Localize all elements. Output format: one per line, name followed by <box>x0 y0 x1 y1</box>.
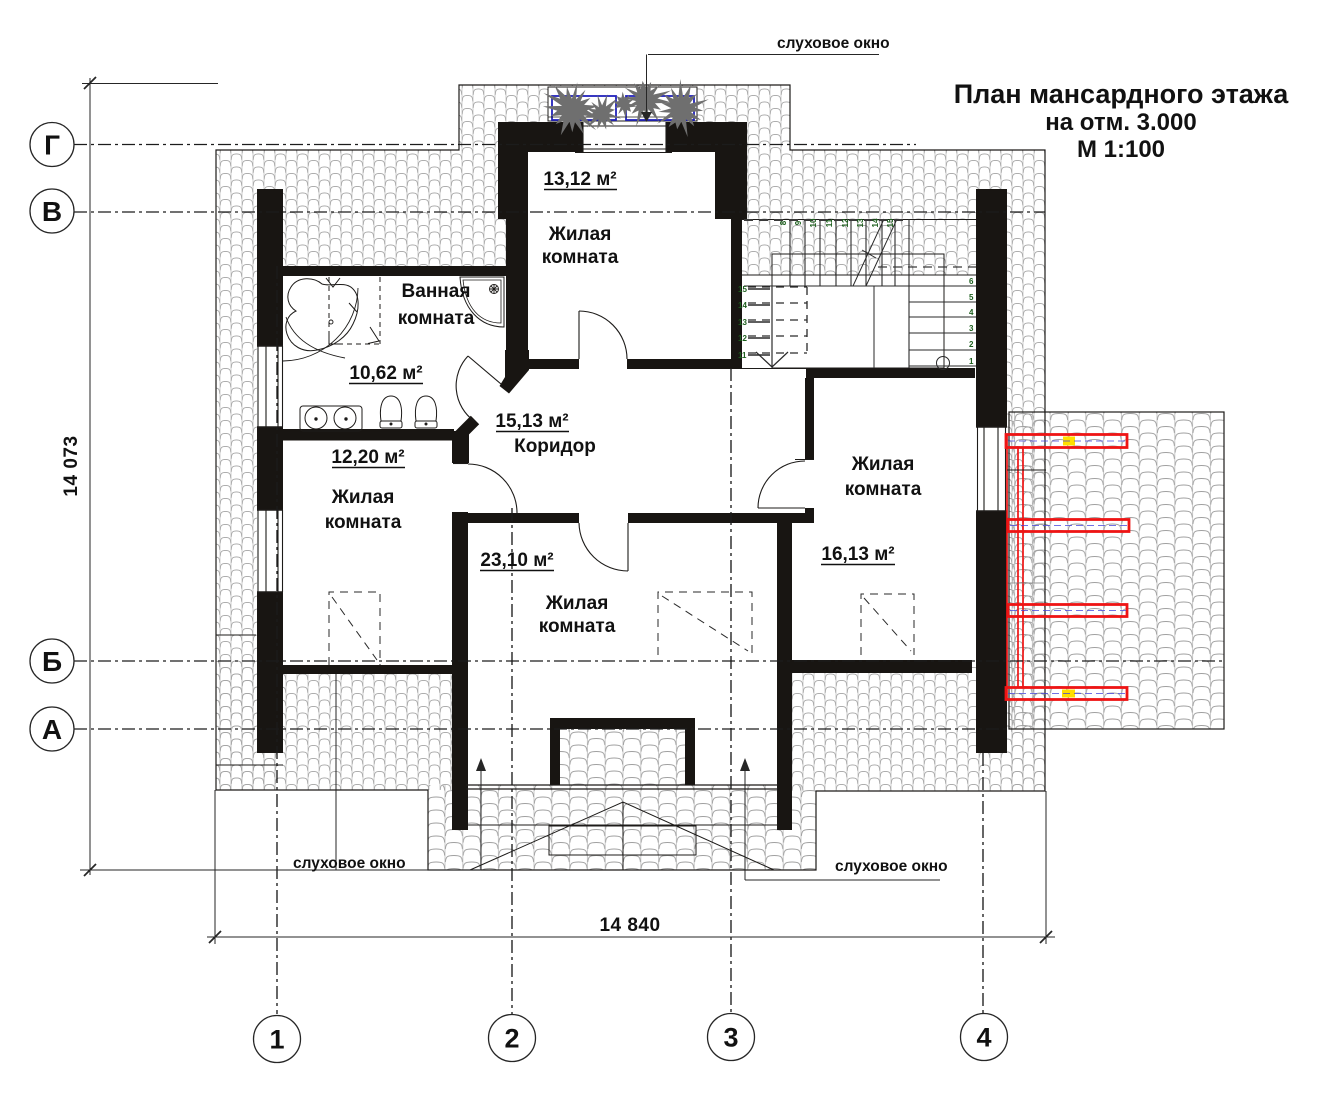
svg-text:Ванная: Ванная <box>402 281 471 302</box>
svg-text:слуховое окно: слуховое окно <box>293 855 406 872</box>
svg-text:5: 5 <box>969 293 974 302</box>
svg-text:12: 12 <box>841 218 850 227</box>
svg-text:Коридор: Коридор <box>514 436 596 457</box>
svg-text:13: 13 <box>856 218 865 227</box>
svg-text:Б: Б <box>42 646 62 677</box>
svg-text:комната: комната <box>539 616 616 637</box>
svg-text:слуховое окно: слуховое окно <box>835 858 948 875</box>
svg-text:1: 1 <box>969 357 974 366</box>
svg-text:Жилая: Жилая <box>851 454 915 475</box>
svg-text:Жилая: Жилая <box>331 487 395 508</box>
svg-text:Г: Г <box>44 130 60 161</box>
svg-text:на отм. 3.000: на отм. 3.000 <box>1045 109 1196 136</box>
svg-text:4: 4 <box>976 1023 991 1053</box>
svg-text:Жилая: Жилая <box>548 224 612 245</box>
svg-text:8: 8 <box>779 220 788 225</box>
svg-text:2: 2 <box>969 340 974 349</box>
svg-text:комната: комната <box>398 308 475 329</box>
svg-text:15: 15 <box>738 285 747 294</box>
svg-text:13,12 м²: 13,12 м² <box>543 169 616 190</box>
svg-text:3: 3 <box>969 324 974 333</box>
svg-text:16,13 м²: 16,13 м² <box>821 544 894 565</box>
svg-text:11: 11 <box>825 218 834 227</box>
svg-text:11: 11 <box>738 351 747 360</box>
svg-text:4: 4 <box>969 308 974 317</box>
svg-text:10: 10 <box>809 218 818 227</box>
svg-text:14 840: 14 840 <box>599 915 660 936</box>
svg-text:А: А <box>42 714 62 745</box>
svg-text:12: 12 <box>738 334 747 343</box>
svg-text:М 1:100: М 1:100 <box>1077 136 1165 163</box>
svg-text:слуховое окно: слуховое окно <box>777 35 890 52</box>
svg-text:6: 6 <box>969 277 974 286</box>
svg-text:1: 1 <box>269 1025 284 1055</box>
svg-text:План мансардного этажа: План мансардного этажа <box>954 79 1290 109</box>
svg-text:комната: комната <box>845 479 922 500</box>
svg-text:Жилая: Жилая <box>545 593 609 614</box>
svg-text:10,62 м²: 10,62 м² <box>349 363 422 384</box>
svg-text:9: 9 <box>794 220 803 225</box>
svg-text:14 073: 14 073 <box>61 435 82 496</box>
svg-text:15: 15 <box>886 218 895 227</box>
svg-text:В: В <box>42 196 62 227</box>
svg-text:23,10 м²: 23,10 м² <box>480 550 553 571</box>
svg-text:14: 14 <box>871 218 880 227</box>
svg-text:комната: комната <box>542 247 619 268</box>
svg-text:13: 13 <box>738 318 747 327</box>
svg-text:12,20 м²: 12,20 м² <box>331 447 404 468</box>
svg-text:3: 3 <box>723 1023 738 1053</box>
svg-text:комната: комната <box>325 512 402 533</box>
svg-text:14: 14 <box>738 301 747 310</box>
svg-text:15,13 м²: 15,13 м² <box>495 411 568 432</box>
svg-text:2: 2 <box>504 1024 519 1054</box>
